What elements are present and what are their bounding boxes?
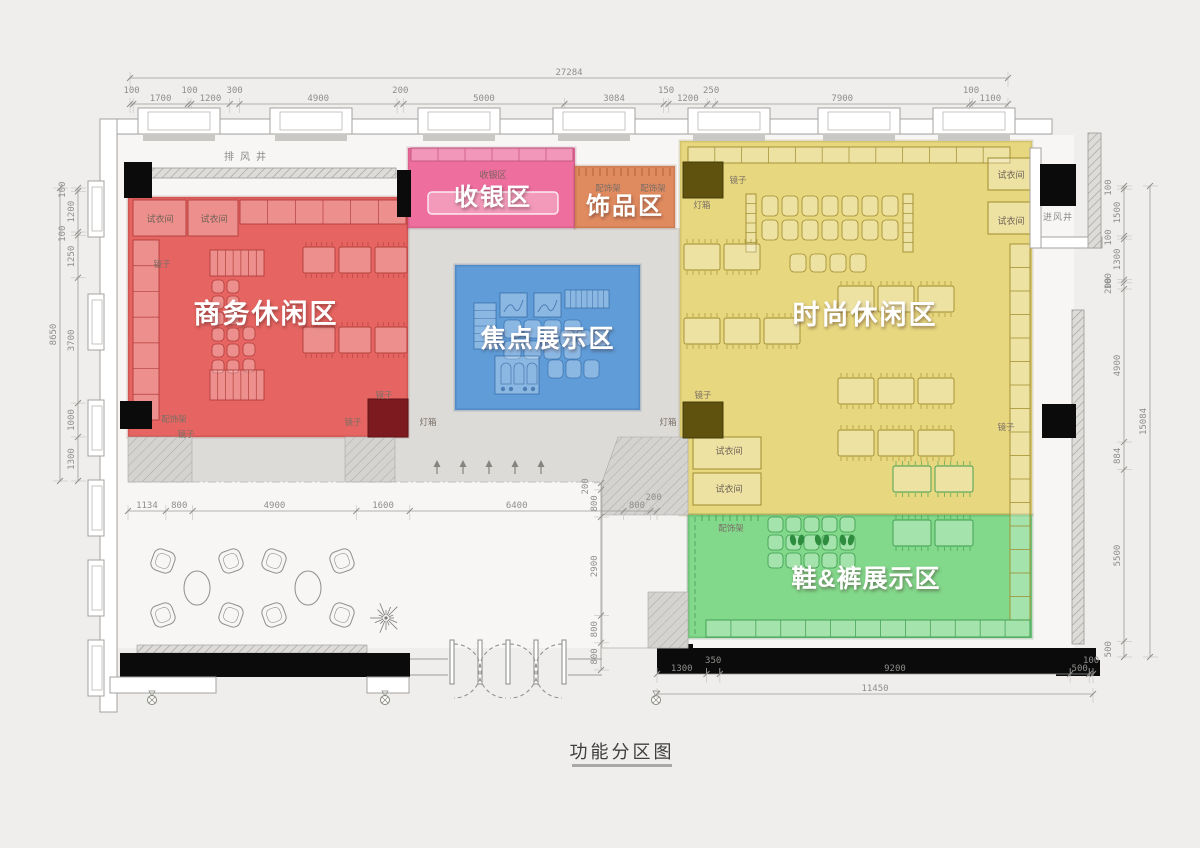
column [1040,164,1076,206]
dim-label: 2900 [590,555,600,577]
dim-label: 1300 [1113,249,1123,271]
mirror-label: 镜子 [997,422,1015,432]
cashier-small-label: 收银区 [479,169,506,180]
floor-plan-canvas: 排风井 进风井 试衣间 试衣间 试衣间 试衣间 试衣间 试衣间 镜子 镜子 镜子… [0,0,1200,848]
dim-label: 1000 [67,409,77,431]
dim-label: 4900 [1113,355,1123,377]
dim-label: 8650 [49,324,59,346]
floor-plan-svg: 排风井 进风井 试衣间 试衣间 试衣间 试衣间 试衣间 试衣间 镜子 镜子 镜子… [0,0,1200,848]
dim-label: 800 [629,501,645,511]
zone-label-fashion: 时尚休闲区 [793,300,938,330]
dim-label: 4900 [307,94,329,104]
dim-label: 100 [1104,179,1114,195]
dim-label: 100 [1083,656,1099,666]
dim-label: 1200 [67,201,77,223]
dim-label: 884 [1113,448,1123,464]
fitting-room-label: 试衣间 [715,445,742,456]
intake-shaft-label: 进风井 [1043,211,1073,222]
dim-label: 1200 [677,94,699,104]
lightbox-yellow-top [683,162,723,198]
fitting-room-label: 试衣间 [200,213,227,224]
dim-label: 1600 [372,501,394,511]
sheet-title: 功能分区图 [570,742,675,762]
dim-label: 800 [171,501,187,511]
dim-label: 6400 [506,501,528,511]
dim-label: 200 [392,86,408,96]
accessory-rack-label: 配饰架 [595,183,621,193]
mirror-label: 镜子 [375,390,393,400]
lightbox-label: 灯箱 [419,417,437,427]
dim-label: 200 [1104,278,1114,294]
zone-label-shoes: 鞋&裤展示区 [791,565,940,593]
mirror-label: 镜子 [344,417,362,427]
dim-label: 15084 [1139,408,1149,435]
fitting-room-label: 试衣间 [997,215,1024,226]
accessory-rack-label: 配饰架 [161,414,187,424]
column [1042,404,1076,438]
dim-label: 1250 [67,246,77,268]
dim-label: 200 [646,493,662,503]
fitting-room-label: 试衣间 [146,213,173,224]
dim-label: 100 [58,226,68,242]
zone-label-accessories: 饰品区 [586,193,664,220]
dim-label: 5500 [1113,545,1123,567]
exhaust-shaft-label: 排风井 [224,150,272,163]
fitting-room-label: 试衣间 [715,483,742,494]
lightbox-label: 灯箱 [659,417,677,427]
dim-label: 9200 [884,664,906,674]
mirror-label: 镜子 [153,259,171,269]
dim-label: 3084 [603,94,625,104]
dim-label: 11450 [861,684,888,694]
dim-label: 100 [181,86,197,96]
dim-label: 1500 [1113,202,1123,224]
accessory-rack-label: 配饰架 [640,183,666,193]
mirror-label: 镜子 [694,390,712,400]
dim-label: 200 [581,478,591,494]
dim-label: 1200 [200,94,222,104]
dim-label: 350 [705,656,721,666]
zone-label-business: 商务休闲区 [194,299,339,329]
dim-label: 5000 [473,94,495,104]
lightbox-yellow-mid [683,402,723,438]
mirror-label: 镜子 [177,429,195,439]
dim-label: 1700 [150,94,172,104]
dim-label: 100 [58,182,68,198]
accessory-rack-label: 配饰架 [718,523,744,533]
dim-label: 4900 [264,501,286,511]
dim-label: 800 [590,621,600,637]
dim-label: 100 [963,86,979,96]
dim-label: 7900 [831,94,853,104]
fitting-room-label: 试衣间 [997,169,1024,180]
dim-label: 1134 [136,501,158,511]
dim-label: 500 [1104,641,1114,657]
dim-label: 300 [226,86,242,96]
column [124,162,152,198]
column [120,401,152,429]
dim-label: 3700 [67,330,77,352]
zone-label-cashier: 收银区 [454,183,532,211]
dim-label: 250 [703,86,719,96]
lightbox-red [368,399,408,437]
dim-label: 1100 [979,94,1001,104]
mirror-label: 镜子 [729,175,747,185]
dim-label: 800 [590,495,600,511]
dim-label: 100 [1104,229,1114,245]
title-underline [572,764,672,767]
dim-label: 1300 [67,448,77,470]
dim-label: 150 [658,86,674,96]
dim-label: 27284 [555,68,582,78]
zone-label-focus: 焦点展示区 [480,324,615,353]
column [397,170,411,217]
dim-label: 800 [590,648,600,664]
dim-label: 100 [123,86,139,96]
dim-label: 1300 [671,664,693,674]
lightbox-label: 灯箱 [693,200,711,210]
